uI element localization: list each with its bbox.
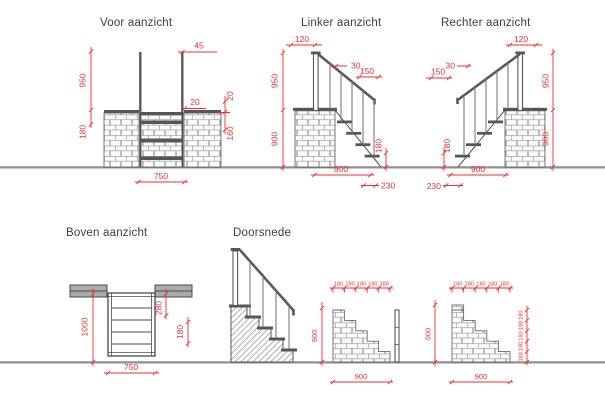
dim-rechter-180: 180 <box>442 139 452 153</box>
dim-boven-750: 750 <box>124 362 138 372</box>
detail-post <box>395 310 399 362</box>
title-boven-aanzicht: Boven aanzicht <box>66 227 148 239</box>
post-cap <box>515 52 525 55</box>
dim-voor-20-right: 20 <box>225 91 235 101</box>
dim-linker-120: 120 <box>295 34 309 44</box>
post-cap <box>231 248 241 251</box>
dim-detail-right-900-width: 900 <box>475 372 488 381</box>
title-linker-aanzicht: Linker aanzicht <box>301 17 382 29</box>
svg-text:180: 180 <box>488 282 497 288</box>
handrail <box>457 54 520 101</box>
wall-cap-right <box>184 110 221 113</box>
detail-right-riser-labels: 180 180 180 180 180 <box>519 311 525 362</box>
svg-text:180: 180 <box>334 282 343 288</box>
brick-wall <box>295 111 335 167</box>
brick-wall-right <box>184 113 221 167</box>
svg-text:180: 180 <box>380 282 389 288</box>
dim-voor-45: 45 <box>194 41 204 51</box>
dim-boven-280: 280 <box>154 301 164 315</box>
top-course-cap <box>452 305 464 310</box>
wall-cap <box>503 108 547 111</box>
dim-voor-750: 750 <box>154 171 168 181</box>
svg-text:180: 180 <box>476 282 485 288</box>
view-voor-aanzicht: Voor aanzicht 950 180 45 20 20 160 750 <box>78 17 236 184</box>
svg-text:180: 180 <box>519 342 525 351</box>
detail-left-tread-labels: 180 180 180 180 180 <box>334 282 389 288</box>
plan-wall-right <box>155 285 192 297</box>
svg-text:180: 180 <box>346 282 355 288</box>
title-voor-aanzicht: Voor aanzicht <box>100 17 173 29</box>
dim-rechter-900-run: 900 <box>471 164 485 174</box>
railing-post <box>518 54 523 111</box>
view-rechter-aanzicht: Rechter aanzicht 120 950 900 30 150 180 … <box>426 17 555 191</box>
dim-rechter-230: 230 <box>427 181 441 191</box>
dim-detail-left-900-height: 900 <box>310 330 319 343</box>
dim-rechter-120: 120 <box>514 34 528 44</box>
view-detail-right-wall: 180 180 180 180 180 180 180 180 180 180 … <box>424 282 530 385</box>
handrail <box>240 250 294 311</box>
plan-stairs <box>108 293 155 356</box>
svg-text:180: 180 <box>357 282 366 288</box>
stair-stringer <box>458 110 505 167</box>
dim-rechter-150: 150 <box>431 67 445 77</box>
wall-cap-left <box>104 110 139 113</box>
railing-post <box>314 54 319 111</box>
detail-right-tread-labels: 180 180 180 180 180 <box>453 282 509 288</box>
dim-detail-right-900-height: 900 <box>424 328 433 341</box>
dim-detail-left-900-width: 900 <box>355 372 368 381</box>
svg-text:180: 180 <box>500 282 509 288</box>
dim-linker-230: 230 <box>381 181 395 191</box>
title-doorsnede: Doorsnede <box>233 227 291 239</box>
svg-text:180: 180 <box>453 282 462 288</box>
view-boven-aanzicht: Boven aanzicht 1000 280 180 750 <box>66 227 192 375</box>
railing-post <box>233 251 238 306</box>
view-doorsnede: Doorsnede <box>229 227 297 362</box>
dim-voor-160: 160 <box>225 126 235 140</box>
view-detail-left-wall: 180 180 180 180 180 900 900 <box>310 282 393 385</box>
dim-linker-150: 150 <box>360 66 374 76</box>
dim-linker-950: 950 <box>270 74 280 88</box>
svg-text:180: 180 <box>368 282 377 288</box>
balusters <box>464 63 508 156</box>
dim-voor-180: 180 <box>78 125 88 139</box>
stair-top-edge <box>140 112 184 115</box>
dim-boven-180: 180 <box>175 325 185 339</box>
svg-text:180: 180 <box>519 352 525 361</box>
dim-linker-900-run: 900 <box>334 164 348 174</box>
title-rechter-aanzicht: Rechter aanzicht <box>441 17 531 29</box>
stepped-brick-wall <box>452 310 510 362</box>
view-linker-aanzicht: Linker aanzicht 120 950 900 30 150 180 9… <box>270 17 396 191</box>
dim-rechter-900-height: 900 <box>541 132 551 146</box>
dim-voor-20-post: 20 <box>190 97 200 107</box>
svg-text:180: 180 <box>465 282 474 288</box>
stair-treads <box>455 121 503 158</box>
svg-text:180: 180 <box>519 331 525 340</box>
plan-wall-left <box>70 285 107 297</box>
stair-drawing-svg: Voor aanzicht 950 180 45 20 20 160 750 L… <box>0 0 605 416</box>
dim-linker-900-height: 900 <box>270 132 280 146</box>
svg-text:180: 180 <box>519 321 525 330</box>
dim-rechter-950: 950 <box>541 74 551 88</box>
stair-section-mass <box>231 307 293 362</box>
dim-boven-1000: 1000 <box>80 317 90 336</box>
brick-wall <box>505 111 545 167</box>
technical-drawing-canvas: Voor aanzicht 950 180 45 20 20 160 750 L… <box>0 0 605 416</box>
dim-voor-950: 950 <box>78 73 88 87</box>
svg-text:180: 180 <box>519 311 525 320</box>
brick-wall-left <box>104 113 139 167</box>
dim-rechter-30: 30 <box>446 61 456 71</box>
stepped-brick-wall <box>333 310 390 362</box>
dim-linker-180: 180 <box>374 139 384 153</box>
